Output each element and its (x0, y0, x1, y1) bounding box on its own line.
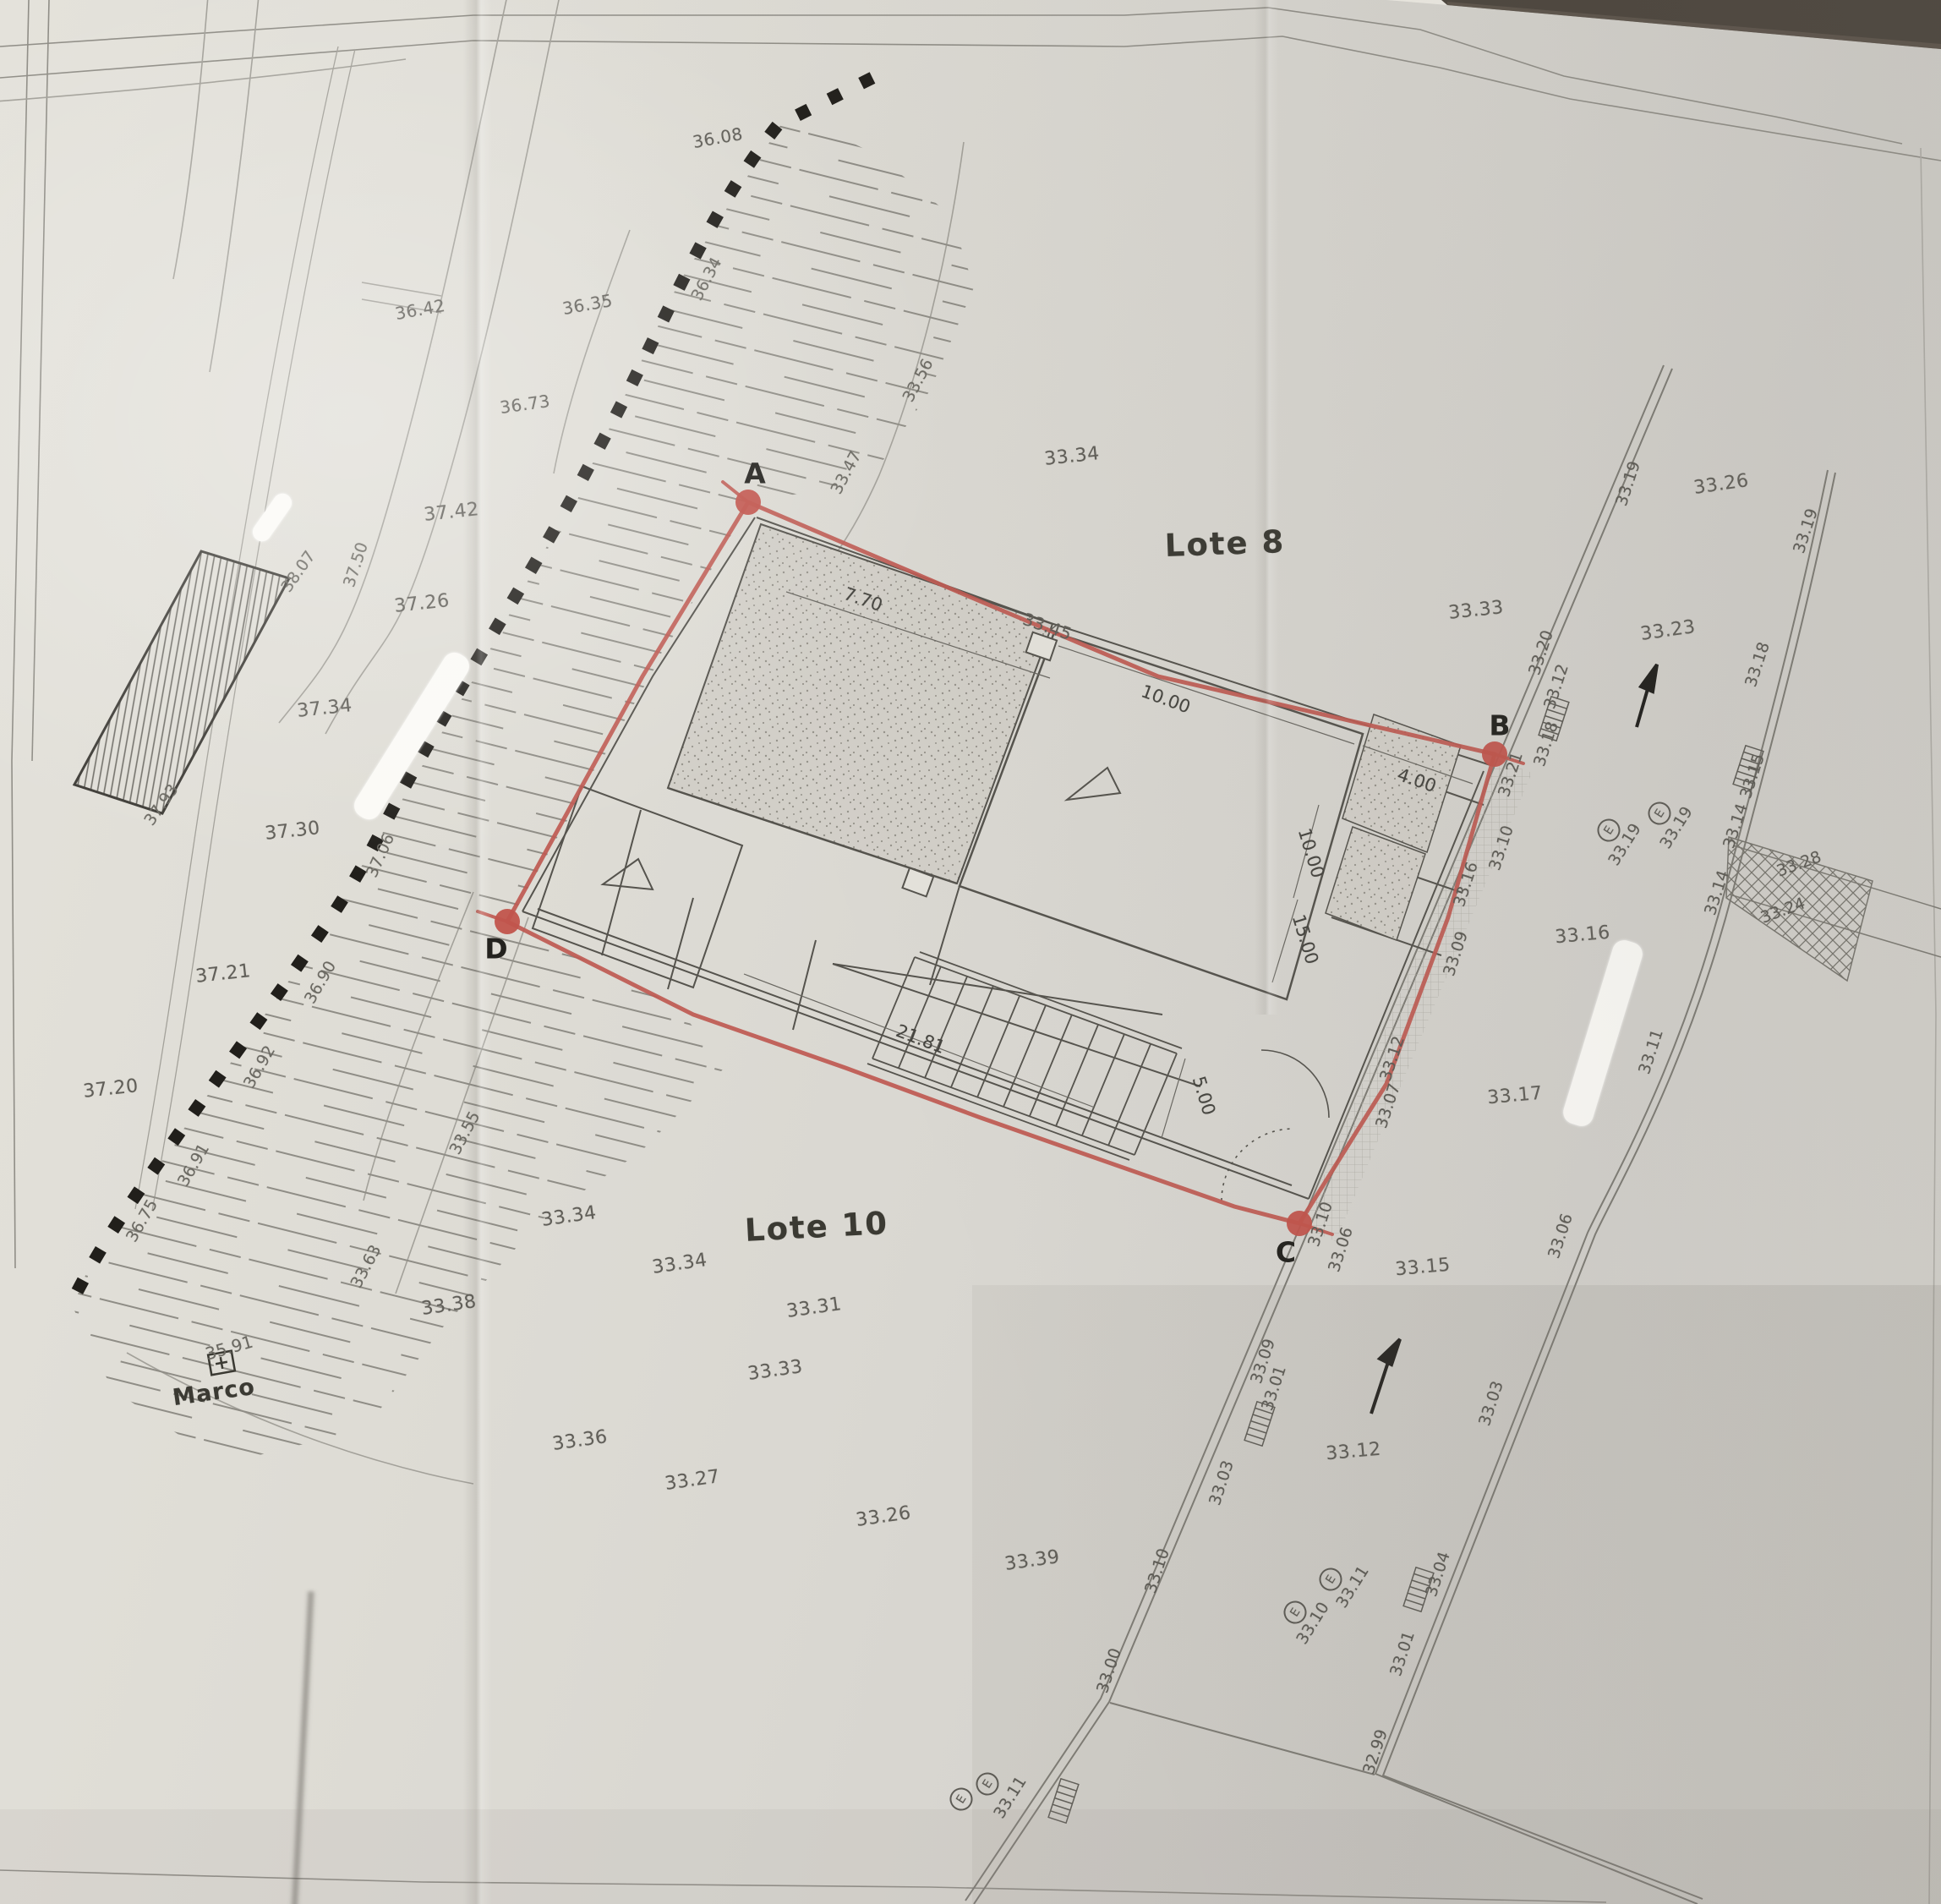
stairs (867, 952, 1182, 1160)
left-hatched-parcel (74, 551, 289, 813)
roads (965, 365, 1941, 1904)
plan-linework (0, 0, 1941, 1904)
site-plan-photo: 36.0836.4236.3536.7337.4237.2637.3437.30… (0, 0, 1941, 1904)
north-arrow-top (1637, 665, 1657, 727)
vertex-dot-d (495, 909, 520, 934)
north-arrow-bottom (1371, 1339, 1400, 1414)
vertex-dot-b (1482, 741, 1507, 767)
crosshatch-patch (1726, 837, 1873, 981)
vertex-dot-c (1287, 1211, 1312, 1236)
vertex-dot-a (735, 490, 761, 515)
